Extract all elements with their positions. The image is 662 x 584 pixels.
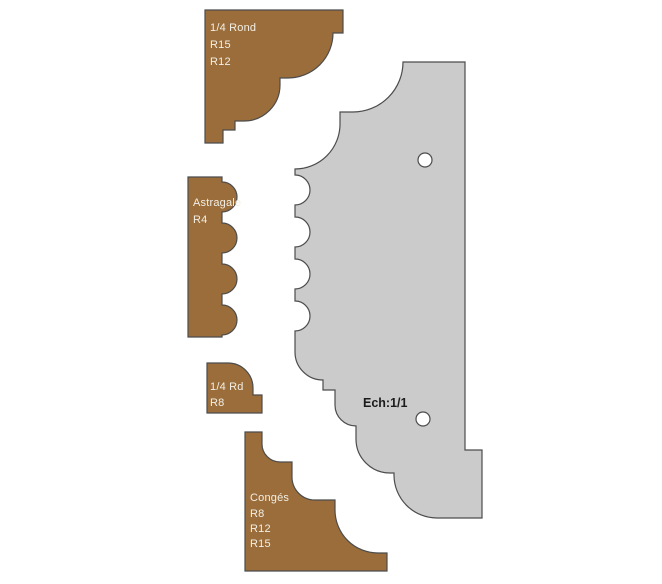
- astragale-name-label: Astragale: [193, 197, 241, 209]
- astragale-r4-label: R4: [193, 214, 207, 226]
- quarter-rond-r12-label: R12: [210, 56, 231, 68]
- conges-name-label: Congés: [250, 492, 289, 504]
- drawing-svg: 1/4 Rond R15 R12 Astragale R4 1/4 Rd R8 …: [0, 0, 662, 584]
- quarter-rond-r15-label: R15: [210, 39, 231, 51]
- quarter-rd-name-label: 1/4 Rd: [210, 381, 244, 393]
- profile-knife-drawing: 1/4 Rond R15 R12 Astragale R4 1/4 Rd R8 …: [0, 0, 662, 584]
- conges-r12-label: R12: [250, 523, 271, 535]
- knife-hole-bottom: [416, 412, 430, 426]
- knife-hole-top: [418, 153, 432, 167]
- scale-label: Ech:1/1: [363, 396, 408, 410]
- conges-r8-label: R8: [250, 508, 264, 520]
- conges-r15-label: R15: [250, 538, 271, 550]
- quarter-rd-r8-label: R8: [210, 397, 224, 409]
- quarter-rond-name-label: 1/4 Rond: [210, 22, 256, 34]
- knife-blank-shape: [295, 62, 482, 518]
